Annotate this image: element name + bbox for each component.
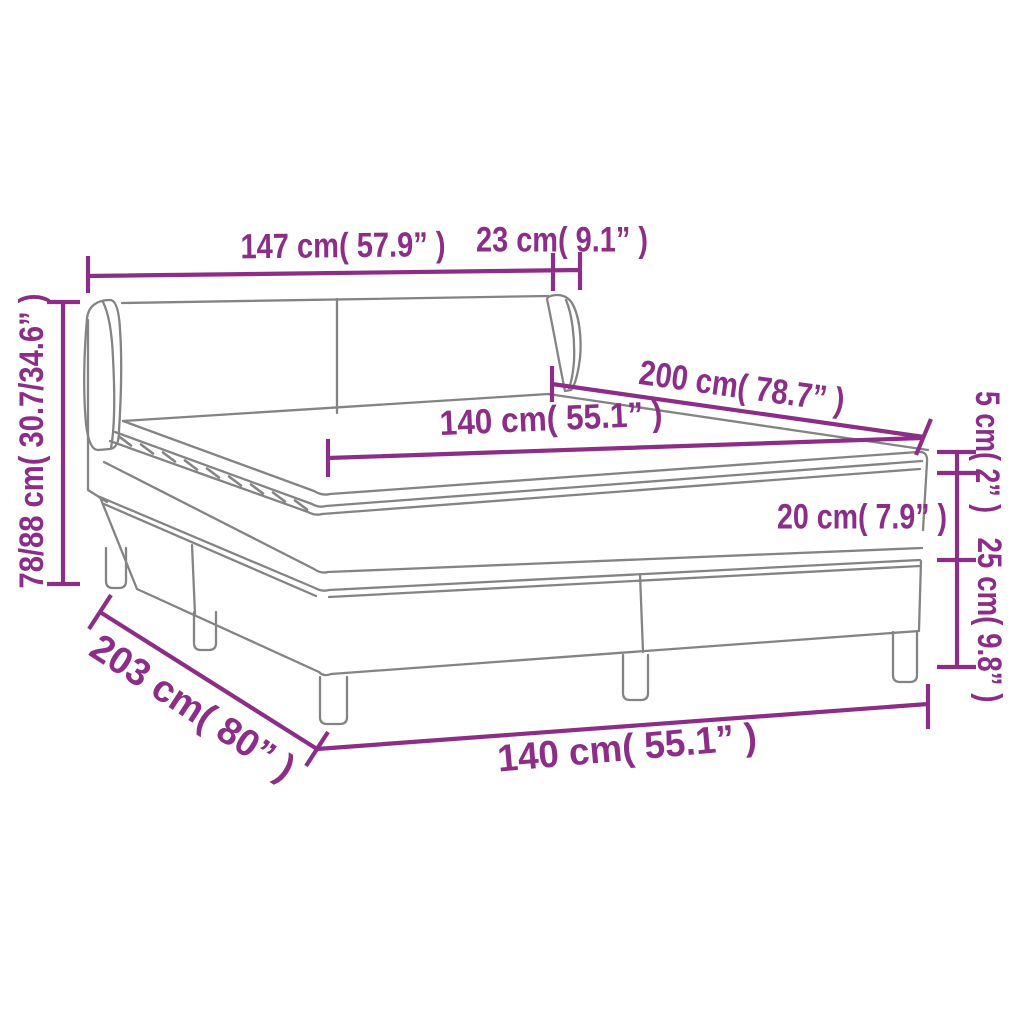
dim-headboard-height — [47, 302, 80, 584]
label-headboard-height: 78/88 cm( 30.7/34.6” ) — [13, 294, 51, 589]
bed-leg-foot-right — [893, 632, 917, 682]
base-foot-seam — [640, 574, 643, 652]
label-mattress-width: 140 cm( 55.1” ) — [439, 394, 663, 443]
headboard-right-wing-inner-line — [566, 300, 574, 388]
bed-leg-front-corner — [320, 677, 347, 724]
topper-stitch-dashes — [119, 437, 307, 510]
headboard-panel-top-edge — [122, 296, 548, 303]
label-wing-depth: 23 cm( 9.1” ) — [476, 220, 648, 259]
label-topper-thickness: 5 cm( 2” ) — [968, 391, 1006, 513]
dimension-labels: 147 cm( 57.9” ) 23 cm( 9.1” ) 78/88 cm( … — [13, 220, 1008, 789]
base-bottom-edge — [137, 589, 919, 675]
label-mattress-thickness: 20 cm( 7.9” ) — [777, 497, 947, 536]
diagram-canvas: 147 cm( 57.9” ) 23 cm( 9.1” ) 78/88 cm( … — [0, 0, 1024, 1024]
base-side-seam — [192, 545, 195, 614]
label-base-length: 203 cm( 80” ) — [82, 626, 302, 789]
headboard-left-wing-inner-line — [103, 302, 114, 448]
bed-leg-foot-middle — [623, 655, 648, 700]
base-right-edge — [919, 561, 921, 630]
bed-dimension-diagram: 147 cm( 57.9” ) 23 cm( 9.1” ) 78/88 cm( … — [0, 0, 1024, 1024]
label-base-height: 25 cm( 9.8” ) — [970, 538, 1008, 703]
dim-headboard-height-line — [47, 302, 80, 584]
headboard-panel-left-edge — [88, 320, 107, 502]
label-headboard-width: 147 cm( 57.9” ) — [240, 225, 445, 266]
headboard-left-wing — [84, 300, 121, 450]
